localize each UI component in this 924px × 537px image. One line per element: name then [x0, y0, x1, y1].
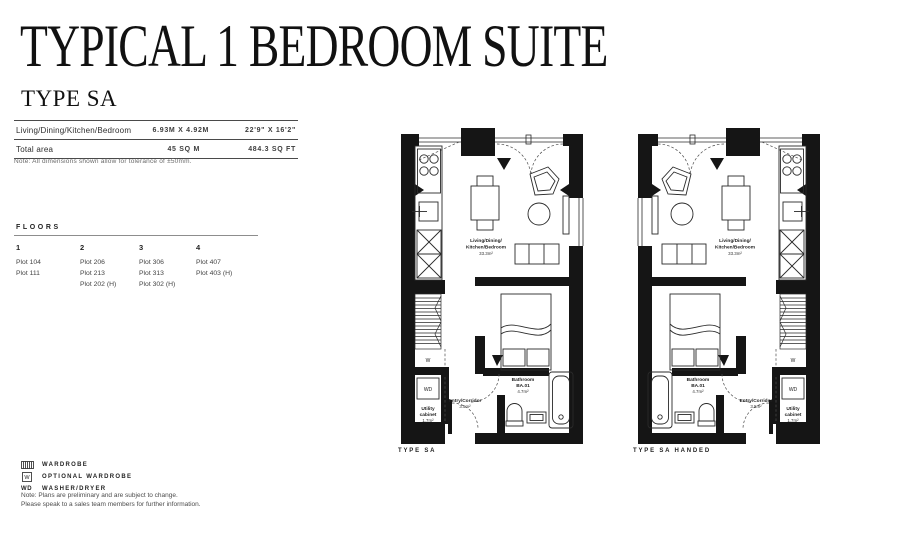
- optional-wardrobe-symbol: W: [24, 475, 30, 481]
- plot-item: Plot 206: [80, 257, 139, 268]
- table-row: Total area 45 SQ M 484.3 SQ FT: [14, 139, 298, 159]
- entry-corridor-area: 3.5m²: [750, 404, 762, 409]
- floorplan-type-sa: Living/Dining/ Kitchen/Bedroom 33.3m² Ba…: [397, 122, 589, 447]
- utility-area: 1.7m²: [422, 418, 434, 423]
- floor-number: 2: [80, 243, 139, 252]
- floor-column-2: 2 Plot 206 Plot 213 Plot 202 (H): [80, 243, 139, 290]
- plot-item: Plot 104: [16, 257, 80, 268]
- plan-geometry-mirrored: [638, 128, 820, 444]
- wardrobe-symbol: W: [426, 358, 431, 364]
- entry-corridor-area: 3.5m²: [459, 404, 471, 409]
- legend-row-optional-wardrobe: W OPTIONAL WARDROBE: [21, 471, 132, 483]
- table-row: Living/Dining/Kitchen/Bedroom 6.93M X 4.…: [14, 120, 298, 139]
- bathroom-label: Bathroom: [512, 377, 535, 383]
- metric-dimensions: 6.93M X 4.92M: [131, 127, 209, 134]
- plot-item: Plot 306: [139, 257, 196, 268]
- plan-geometry: [401, 128, 583, 444]
- page-title: TYPICAL 1 BEDROOM SUITE: [20, 16, 608, 76]
- plot-item: Plot 111: [16, 268, 80, 279]
- washer-dryer-symbol: WD: [424, 387, 433, 393]
- plot-item: Plot 302 (H): [139, 279, 196, 290]
- floors-grid: 1 Plot 104 Plot 111 2 Plot 206 Plot 213 …: [16, 243, 258, 290]
- floorplan-type-sa-handed: Living/Dining/ Kitchen/Bedroom 33.3m² Ba…: [632, 122, 824, 447]
- bathroom-label: Bathroom: [687, 377, 710, 383]
- bathroom-area: 4.7m²: [517, 389, 529, 394]
- total-area-metric: 45 SQ M: [114, 146, 200, 153]
- utility-label: Utility: [421, 406, 435, 412]
- imperial-dimensions: 22'9" X 16'2": [209, 127, 296, 134]
- utility-label: Utility: [786, 406, 800, 412]
- living-room-label: Kitchen/Bedroom: [466, 245, 506, 251]
- living-room-label: Living/Dining/: [719, 238, 751, 244]
- floor-number: 1: [16, 243, 80, 252]
- plot-item: Plot 403 (H): [196, 268, 258, 279]
- floor-number: 4: [196, 243, 258, 252]
- wardrobe-symbol: W: [791, 358, 796, 364]
- living-room-area: 33.3m²: [479, 251, 493, 256]
- legend-row-wardrobe: WARDROBE: [21, 459, 132, 471]
- floor-column-1: 1 Plot 104 Plot 111: [16, 243, 80, 290]
- footer-note: Note: Plans are preliminary and are subj…: [21, 491, 201, 509]
- wardrobe-hatch-icon: [21, 461, 36, 469]
- tolerance-note: Note: All dimensions shown allow for tol…: [14, 158, 192, 165]
- dimensions-table: Living/Dining/Kitchen/Bedroom 6.93M X 4.…: [14, 120, 298, 159]
- living-room-area: 33.3m²: [728, 251, 742, 256]
- legend: WARDROBE W OPTIONAL WARDROBE WD WASHER/D…: [21, 459, 132, 495]
- plan-caption-type-sa: TYPE SA: [398, 448, 436, 454]
- floor-column-3: 3 Plot 306 Plot 313 Plot 302 (H): [139, 243, 196, 290]
- plot-item: Plot 407: [196, 257, 258, 268]
- plot-item: Plot 202 (H): [80, 279, 139, 290]
- legend-label: WARDROBE: [42, 462, 88, 468]
- unit-type-subtitle: TYPE SA: [21, 86, 117, 112]
- living-room-label: Living/Dining/: [470, 238, 502, 244]
- total-area-imperial: 484.3 SQ FT: [200, 146, 296, 153]
- legend-label: OPTIONAL WARDROBE: [42, 474, 132, 480]
- plot-item: Plot 213: [80, 268, 139, 279]
- utility-area: 1.7m²: [787, 418, 799, 423]
- washer-dryer-symbol: WD: [789, 387, 798, 393]
- total-area-label: Total area: [16, 145, 114, 154]
- footer-note-line2: Please speak to a sales team members for…: [21, 500, 201, 509]
- footer-note-line1: Note: Plans are preliminary and are subj…: [21, 491, 201, 500]
- floor-number: 3: [139, 243, 196, 252]
- bathroom-area: 4.7m²: [692, 389, 704, 394]
- plan-caption-type-sa-handed: TYPE SA HANDED: [633, 448, 711, 454]
- optional-wardrobe-icon: W: [21, 472, 36, 482]
- floorplan-page: TYPICAL 1 BEDROOM SUITE TYPE SA Living/D…: [0, 0, 924, 537]
- floors-divider: [14, 235, 258, 236]
- floors-heading: FLOORS: [16, 224, 61, 231]
- room-name: Living/Dining/Kitchen/Bedroom: [16, 126, 131, 135]
- floor-column-4: 4 Plot 407 Plot 403 (H): [196, 243, 258, 290]
- plot-item: Plot 313: [139, 268, 196, 279]
- living-room-label: Kitchen/Bedroom: [715, 245, 755, 251]
